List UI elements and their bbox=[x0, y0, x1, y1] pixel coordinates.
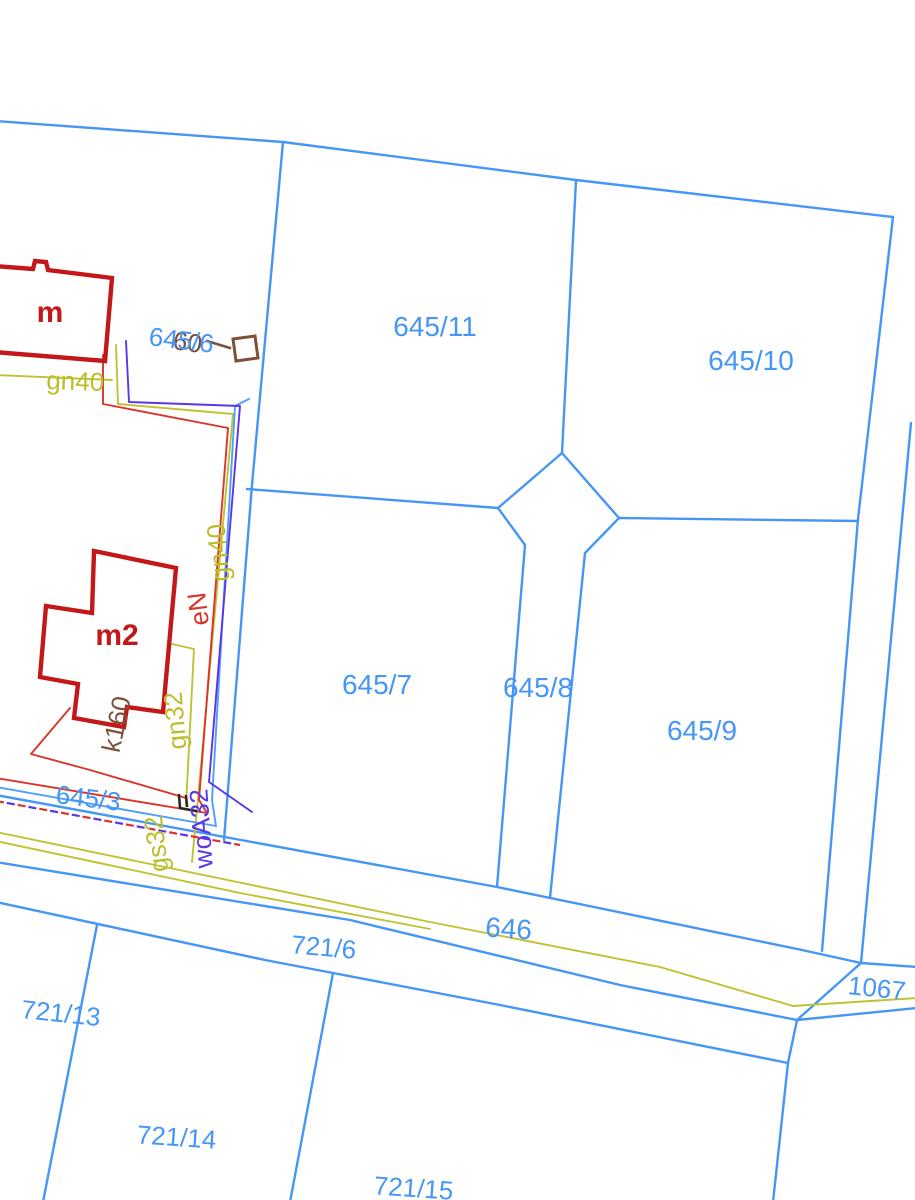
sewer-chamber-symbol bbox=[233, 336, 258, 361]
gas-label-gn40-horizontal: gn40 bbox=[46, 365, 105, 397]
boundary-721-13-721-14 bbox=[43, 925, 97, 1200]
boundary-top bbox=[0, 121, 893, 217]
boundary-721-6-south bbox=[0, 902, 788, 1063]
sewer-label-k160: k160 bbox=[96, 693, 137, 754]
parcel-label-721-6: 721/6 bbox=[290, 929, 357, 965]
boundary-721-15-east bbox=[773, 1063, 788, 1200]
parcel-label-645-8: 645/8 bbox=[503, 672, 573, 703]
building-label-m2: m2 bbox=[95, 619, 138, 652]
gas-label-gn32: gn32 bbox=[158, 691, 193, 751]
boundary-721-14-721-15 bbox=[290, 973, 333, 1200]
parcel-boundaries bbox=[0, 121, 915, 1200]
boundary-1067-east bbox=[797, 1008, 915, 1020]
power-label-eN: eN bbox=[181, 591, 215, 628]
cadastral-map-canvas[interactable]: 60 645/6 645/11 645/10 645/7 645/8 645/9… bbox=[0, 0, 915, 1200]
boundary-645-10-645-9 bbox=[619, 518, 858, 521]
parcel-label-721-13: 721/13 bbox=[20, 994, 102, 1032]
boundary-645-11-645-10 bbox=[562, 180, 576, 453]
parcel-label-1067: 1067 bbox=[847, 970, 908, 1006]
road-646-south-edge bbox=[0, 862, 797, 1020]
parcel-label-645-11: 645/11 bbox=[393, 311, 477, 342]
gas-label-gs32: gs32 bbox=[138, 814, 175, 874]
parcel-label-645-7: 645/7 bbox=[342, 669, 412, 700]
strip-645-8-west bbox=[497, 545, 525, 887]
diamond-junction bbox=[498, 453, 619, 553]
utility-lines bbox=[0, 336, 915, 1006]
parcel-label-645-10: 645/10 bbox=[708, 345, 794, 376]
building-label-m: m bbox=[37, 296, 64, 329]
parcel-label-645-3: 645/3 bbox=[54, 779, 122, 817]
parcel-label-721-14: 721/14 bbox=[136, 1119, 217, 1154]
water-label-woA32: woA32 bbox=[183, 788, 219, 870]
gas-label-gn40-vertical: gn40 bbox=[201, 523, 236, 583]
parcel-label-646: 646 bbox=[484, 911, 533, 945]
strip-645-8-east bbox=[550, 553, 585, 898]
gas-line-gs32-road bbox=[0, 832, 915, 1006]
labels: 60 645/6 645/11 645/10 645/7 645/8 645/9… bbox=[20, 296, 907, 1200]
parcel-label-645-6: 645/6 bbox=[147, 321, 215, 359]
parcel-label-645-9: 645/9 bbox=[667, 715, 737, 746]
boundary-right-sliver bbox=[861, 423, 911, 963]
map-viewport: 60 645/6 645/11 645/10 645/7 645/8 645/9… bbox=[0, 0, 915, 1200]
boundary-east-645-10 bbox=[822, 217, 893, 951]
junction-vertical bbox=[788, 1020, 797, 1063]
boundary-645-11-645-7 bbox=[247, 489, 498, 508]
parcel-label-721-15: 721/15 bbox=[373, 1170, 454, 1200]
